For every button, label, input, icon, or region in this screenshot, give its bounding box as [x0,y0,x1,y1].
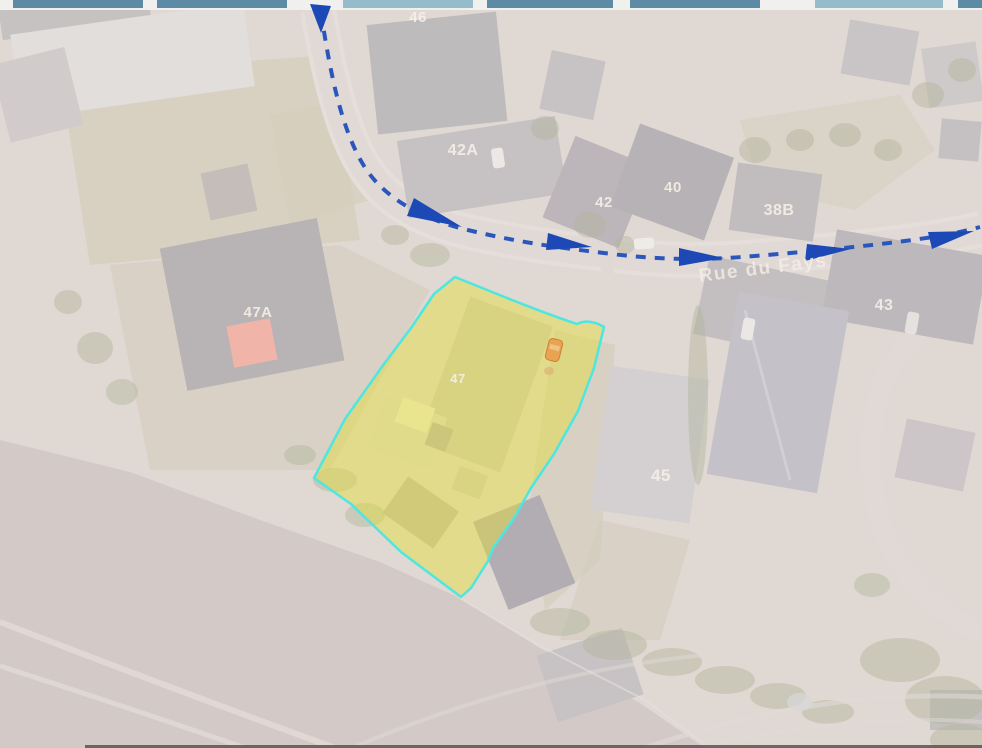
house-number-45: 45 [651,466,671,485]
toolbar-button-4[interactable] [487,0,613,8]
house-number-47: 47 [450,371,465,386]
house-number-43: 43 [875,297,894,314]
house-number-47A: 47A [243,304,272,321]
house-number-40: 40 [664,179,682,196]
toolbar-button-6[interactable] [815,0,943,8]
vehicle-shadow [544,367,554,375]
toolbar-button-3[interactable] [343,0,473,8]
toolbar-button-1[interactable] [13,0,143,8]
house-number-42A: 42A [448,142,479,159]
house-number-42: 42 [595,194,613,211]
map-application-window: 46 42A 42 40 38B 47A 47 43 45 Rue du Fay… [0,0,982,748]
aerial-map-canvas[interactable]: 46 42A 42 40 38B 47A 47 43 45 Rue du Fay… [0,0,982,748]
toolbar-button-5[interactable] [630,0,760,8]
house-number-38B: 38B [764,202,795,219]
house-number-46: 46 [409,9,427,26]
toolbar-button-2[interactable] [157,0,287,8]
toolbar-button-7[interactable] [958,0,982,8]
